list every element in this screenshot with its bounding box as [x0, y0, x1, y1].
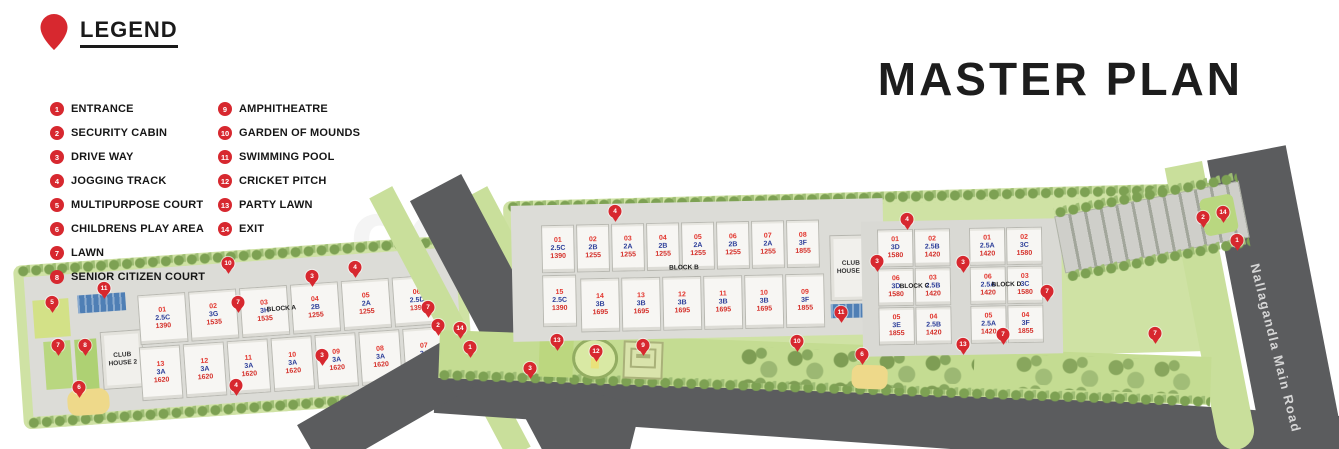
marker-number: 3	[310, 273, 314, 280]
legend-panel: LEGEND 1 ENTRANCE 2 SECURITY CABIN	[40, 14, 178, 50]
marker-pin: 7	[232, 296, 245, 309]
marker-pin: 3	[957, 256, 970, 269]
marker-number: 14	[1219, 209, 1226, 216]
legend-number-badge: 10	[218, 126, 232, 140]
legend-item: 11 SWIMMING POOL	[218, 150, 360, 164]
legend-item-label: AMPHITHEATRE	[239, 103, 328, 115]
marker-pin: 13	[551, 334, 564, 347]
legend-item: 3 DRIVE WAY	[50, 150, 205, 164]
marker-number: 7	[1153, 330, 1157, 337]
legend-item: 9 AMPHITHEATRE	[218, 102, 360, 116]
marker-pin: 2	[432, 319, 445, 332]
marker-number: 13	[553, 337, 560, 344]
marker-number: 11	[838, 309, 845, 316]
marker-pin: 3	[871, 255, 884, 268]
marker-number: 7	[1001, 331, 1005, 338]
marker-pin: 7	[52, 339, 65, 352]
legend-item: 12 CRICKET PITCH	[218, 174, 360, 188]
marker-number: 12	[592, 348, 599, 355]
marker-pin: 4	[349, 261, 362, 274]
marker-pin: 3	[306, 270, 319, 283]
marker-pin: 13	[957, 338, 970, 351]
marker-pin: 7	[422, 301, 435, 314]
master-plan-page: 99acres LEGEND 1 ENTRANCE 2 SECURITY	[0, 0, 1339, 449]
marker-number: 14	[456, 325, 463, 332]
marker-number: 4	[353, 264, 357, 271]
marker-pin: 11	[835, 306, 848, 319]
marker-pin: 3	[524, 362, 537, 375]
legend-number-badge: 1	[50, 102, 64, 116]
marker-pin: 6	[856, 348, 869, 361]
marker-number: 6	[860, 351, 864, 358]
legend-item-label: JOGGING TRACK	[71, 175, 167, 187]
legend-item: 13 PARTY LAWN	[218, 198, 360, 212]
marker-number: 3	[528, 365, 532, 372]
marker-pin: 2	[1197, 211, 1210, 224]
marker-number: 6	[77, 384, 81, 391]
page-title: MASTER PLAN	[878, 52, 1243, 106]
legend-item: 10 GARDEN OF MOUNDS	[218, 126, 360, 140]
legend-item: 1 ENTRANCE	[50, 102, 205, 116]
legend-number-badge: 11	[218, 150, 232, 164]
legend-number-badge: 12	[218, 174, 232, 188]
legend-item-label: SECURITY CABIN	[71, 127, 167, 139]
marker-number: 5	[50, 299, 54, 306]
legend-item: 14 EXIT	[218, 222, 360, 236]
legend-number-badge: 13	[218, 198, 232, 212]
marker-number: 10	[224, 260, 231, 267]
marker-number: 7	[1045, 288, 1049, 295]
marker-pin: 4	[901, 213, 914, 226]
legend-number-badge: 14	[218, 222, 232, 236]
legend-item-label: SWIMMING POOL	[239, 151, 334, 163]
legend-number-badge: 5	[50, 198, 64, 212]
legend-item-label: LAWN	[71, 247, 104, 259]
marker-number: 4	[905, 216, 909, 223]
legend-item-label: DRIVE WAY	[71, 151, 134, 163]
marker-number: 4	[613, 208, 617, 215]
legend-number-badge: 3	[50, 150, 64, 164]
legend-number-badge: 7	[50, 246, 64, 260]
marker-number: 3	[961, 259, 965, 266]
legend-item-label: GARDEN OF MOUNDS	[239, 127, 360, 139]
marker-pin: 1	[1231, 234, 1244, 247]
legend-item-label: CHILDRENS PLAY AREA	[71, 223, 204, 235]
marker-pin: 9	[637, 339, 650, 352]
legend-number-badge: 8	[50, 270, 64, 284]
legend-item: 8 SENIOR CITIZEN COURT	[50, 270, 205, 284]
legend-column-1: 1 ENTRANCE 2 SECURITY CABIN 3 DRIVE WAY	[50, 102, 205, 294]
legend-column-2: 9 AMPHITHEATRE 10 GARDEN OF MOUNDS 11 SW…	[218, 102, 360, 246]
marker-number: 7	[56, 342, 60, 349]
marker-pin: 10	[791, 335, 804, 348]
marker-pin: 7	[997, 328, 1010, 341]
marker-number: 4	[234, 382, 238, 389]
legend-item: 4 JOGGING TRACK	[50, 174, 205, 188]
marker-pin: 4	[230, 379, 243, 392]
marker-pin: 3	[316, 349, 329, 362]
marker-pin: 1	[464, 341, 477, 354]
legend-number-badge: 4	[50, 174, 64, 188]
marker-number: 3	[875, 258, 879, 265]
marker-number: 1	[468, 344, 472, 351]
marker-number: 13	[959, 341, 966, 348]
marker-pin: 12	[590, 345, 603, 358]
legend-item: 7 LAWN	[50, 246, 205, 260]
legend-item-label: MULTIPURPOSE COURT	[71, 199, 203, 211]
legend-number-badge: 9	[218, 102, 232, 116]
marker-number: 3	[320, 352, 324, 359]
legend-item-label: PARTY LAWN	[239, 199, 313, 211]
marker-pin: 5	[46, 296, 59, 309]
marker-number: 2	[1201, 214, 1205, 221]
marker-number: 7	[236, 299, 240, 306]
marker-pin: 14	[1217, 206, 1230, 219]
legend-item-label: ENTRANCE	[71, 103, 134, 115]
marker-pin: 7	[1149, 327, 1162, 340]
marker-pin: 6	[73, 381, 86, 394]
legend-item-label: CRICKET PITCH	[239, 175, 327, 187]
marker-pin: 8	[79, 339, 92, 352]
marker-number: 8	[83, 342, 87, 349]
marker-pin: 14	[454, 322, 467, 335]
marker-pin: 7	[1041, 285, 1054, 298]
marker-number: 7	[426, 304, 430, 311]
marker-pin: 10	[222, 257, 235, 270]
legend-item: 5 MULTIPURPOSE COURT	[50, 198, 205, 212]
legend-number-badge: 6	[50, 222, 64, 236]
legend-item: 6 CHILDRENS PLAY AREA	[50, 222, 205, 236]
marker-pin: 4	[609, 205, 622, 218]
marker-number: 9	[641, 342, 645, 349]
marker-number: 10	[793, 338, 800, 345]
legend-item: 2 SECURITY CABIN	[50, 126, 205, 140]
marker-number: 1	[1235, 237, 1239, 244]
legend-item-label: SENIOR CITIZEN COURT	[71, 271, 205, 283]
legend-number-badge: 2	[50, 126, 64, 140]
legend-item-label: EXIT	[239, 223, 264, 235]
legend-title: LEGEND	[80, 17, 178, 48]
marker-number: 2	[436, 322, 440, 329]
map-pin-icon	[40, 14, 68, 50]
